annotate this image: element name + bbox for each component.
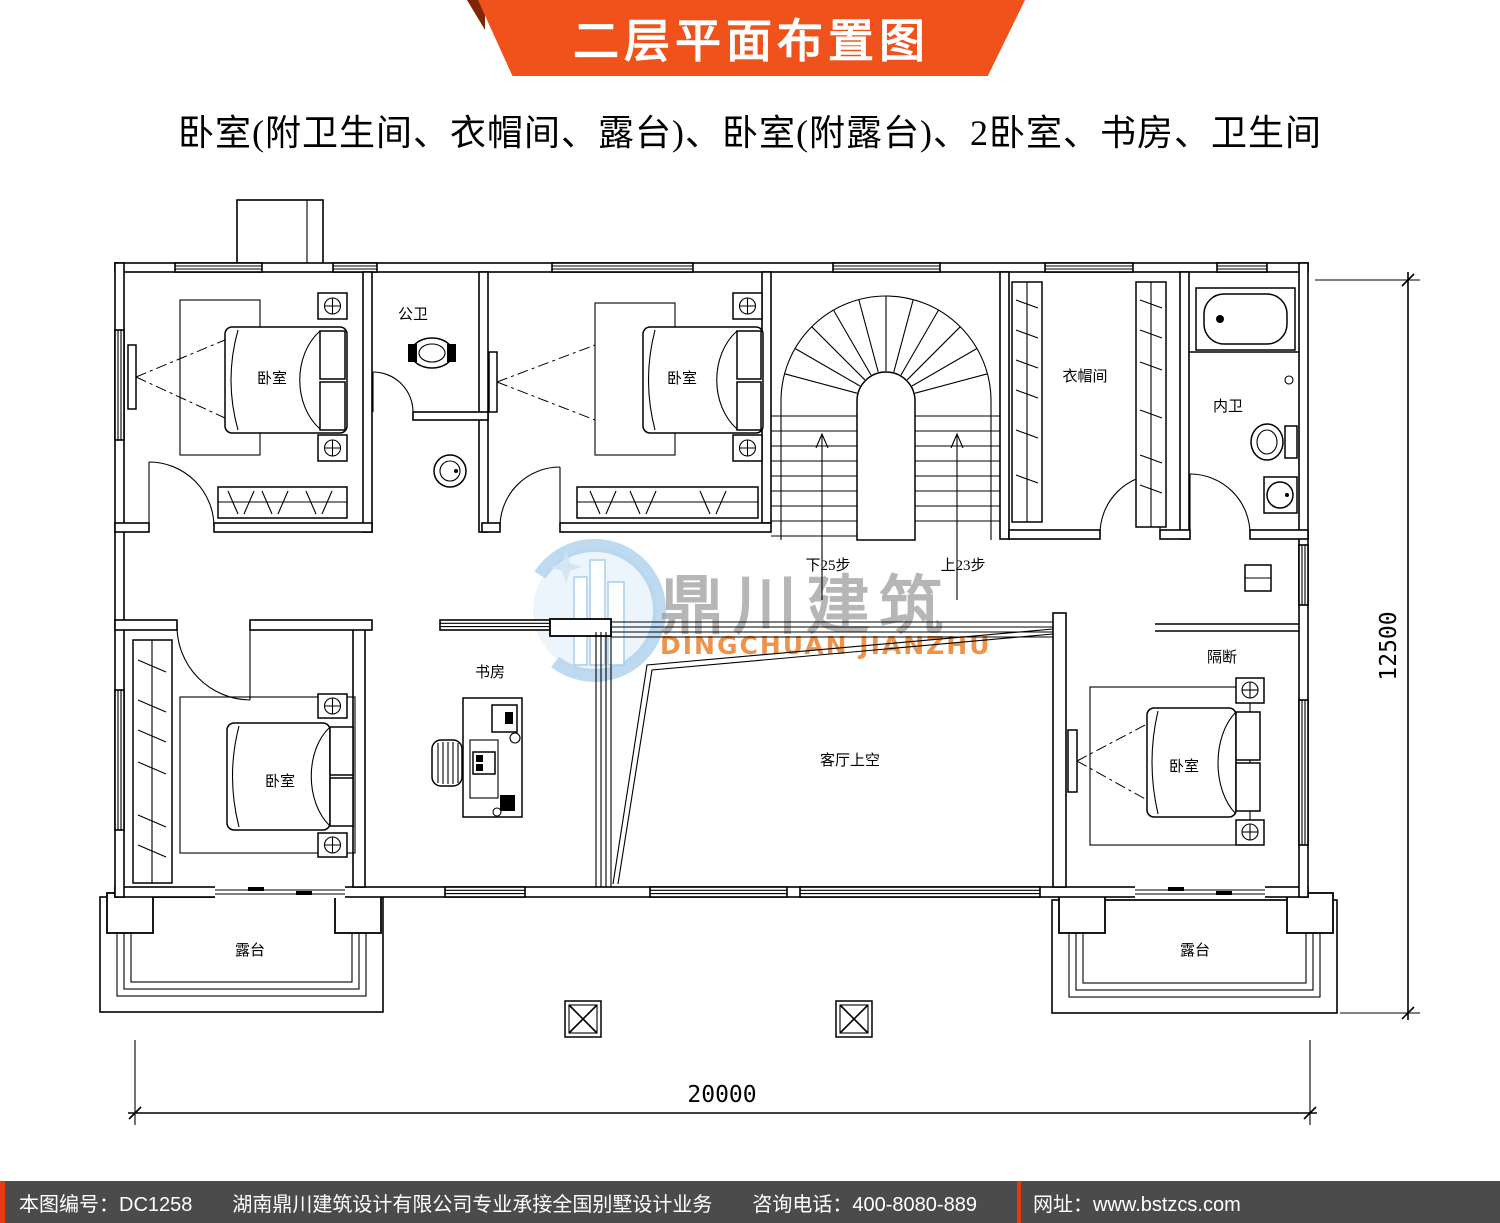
- footer-accent-bar-2: [1017, 1181, 1021, 1223]
- footer-bar: 本图编号：DC1258 湖南鼎川建筑设计有限公司专业承接全国别墅设计业务 咨询电…: [0, 1181, 1500, 1223]
- company-name: 湖南鼎川建筑设计有限公司专业承接全国别墅设计业务: [232, 1188, 712, 1217]
- label-bath-public: 公卫: [398, 307, 428, 323]
- bedroom-tm-furniture: [489, 293, 763, 518]
- subtitle: 卧室(附卫生间、衣帽间、露台)、卧室(附露台)、2卧室、书房、卫生间: [0, 104, 1500, 156]
- floor-plan: 鼎川建筑 DINGCHUAN JIANZHU: [0, 0, 1500, 1223]
- label-partition: 隔断: [1207, 649, 1237, 666]
- label-terrace-right: 露台: [1180, 942, 1210, 959]
- label-stair-down: 下25步: [805, 557, 850, 574]
- title-banner: 二层平面布置图: [478, 0, 1025, 76]
- drawing-number: 本图编号：DC1258: [19, 1188, 192, 1217]
- label-bath-ensuite: 内卫: [1213, 398, 1243, 415]
- roof-protrusion: [237, 200, 323, 267]
- label-bedroom-tl: 卧室: [257, 370, 287, 387]
- page: 鼎川建筑 DINGCHUAN JIANZHU: [0, 0, 1500, 1223]
- bedroom-br-furniture: [1068, 565, 1271, 845]
- columns: [565, 1001, 872, 1037]
- footer-accent-bar: [0, 1181, 5, 1223]
- partition-line: [1155, 624, 1299, 631]
- label-bedroom-tm: 卧室: [667, 370, 697, 387]
- dimension-bottom: 20000: [128, 1040, 1317, 1125]
- cloakroom-racks: [1012, 282, 1166, 527]
- label-cloakroom: 衣帽间: [1062, 368, 1107, 385]
- dim-width: 20000: [687, 1082, 756, 1108]
- label-bedroom-bl: 卧室: [265, 773, 295, 790]
- staircase: [771, 296, 1000, 600]
- terrace-door-left: [215, 886, 345, 898]
- terrace-door-right: [1135, 886, 1265, 898]
- phone-number: 咨询电话：400-8080-889: [752, 1188, 977, 1217]
- study-furniture: [432, 698, 522, 817]
- dim-height: 12500: [1376, 611, 1402, 680]
- label-study: 书房: [475, 664, 505, 681]
- label-stair-up: 上23步: [940, 557, 985, 574]
- page-title: 二层平面布置图: [573, 5, 930, 71]
- bedroom-tl-furniture: [128, 293, 347, 518]
- ensuite-fixtures: [1189, 288, 1299, 513]
- label-terrace-left: 露台: [235, 942, 265, 959]
- label-bedroom-br: 卧室: [1169, 758, 1199, 775]
- label-living-void: 客厅上空: [820, 752, 880, 769]
- bedroom-bl-furniture: [133, 640, 355, 883]
- website: 网址：www.bstzcs.com: [1033, 1188, 1241, 1217]
- watermark-en: DINGCHUAN JIANZHU: [660, 631, 992, 660]
